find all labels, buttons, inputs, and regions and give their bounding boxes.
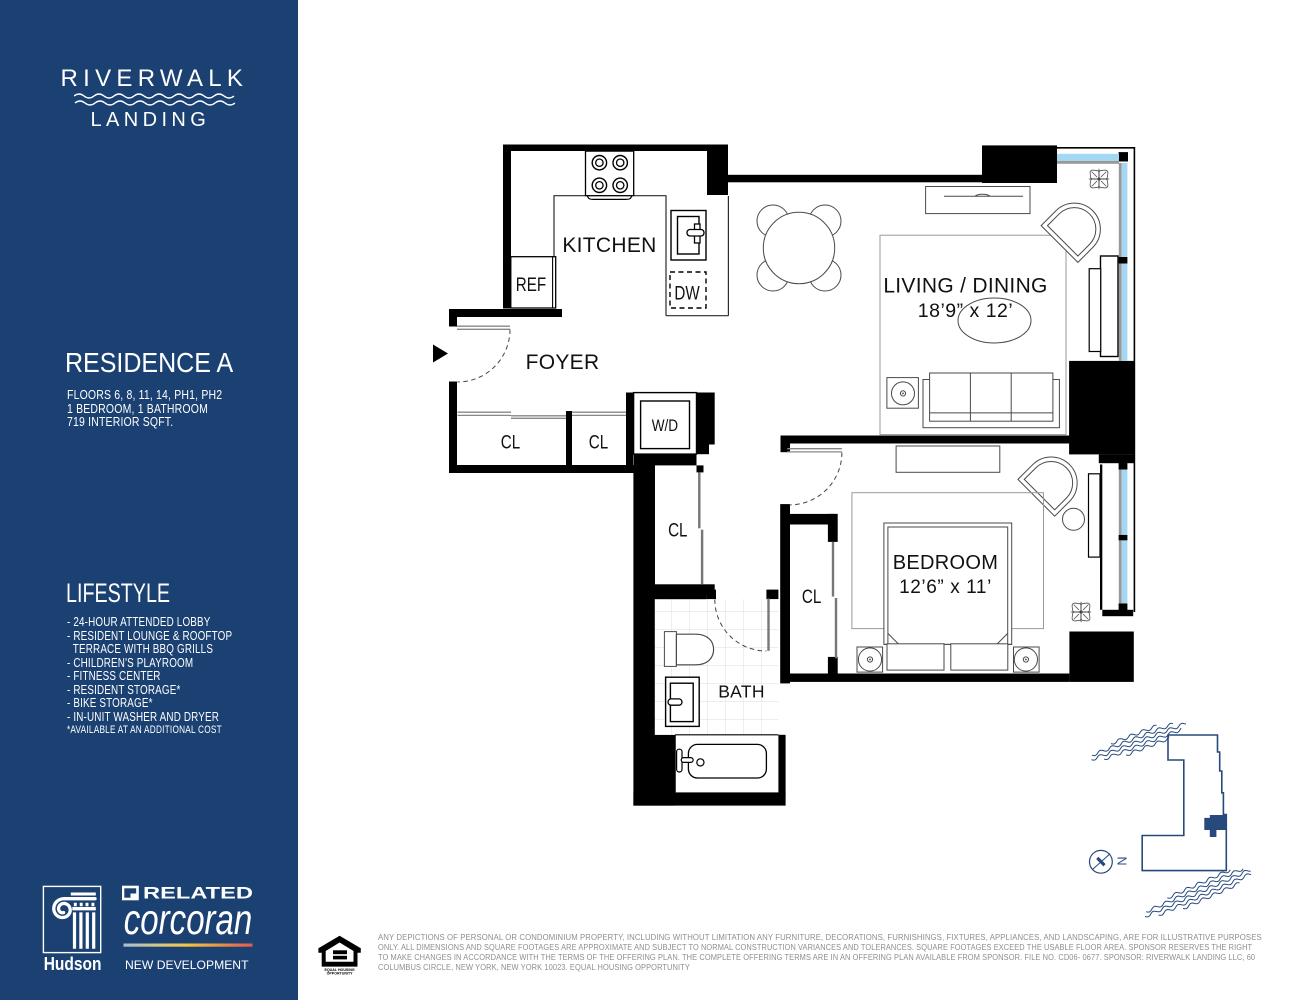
svg-text:CL: CL <box>501 431 521 453</box>
svg-text:BEDROOM: BEDROOM <box>893 552 998 574</box>
svg-text:LIVING / DINING: LIVING / DINING <box>883 275 1047 298</box>
svg-text:CL: CL <box>668 518 688 540</box>
svg-text:N: N <box>1115 857 1129 866</box>
svg-text:CL: CL <box>802 585 822 607</box>
svg-text:CL: CL <box>589 431 609 453</box>
svg-text:REF: REF <box>516 273 546 295</box>
svg-text:W/D: W/D <box>652 416 678 435</box>
svg-text:18’9” x 12’: 18’9” x 12’ <box>918 300 1013 322</box>
svg-text:DW: DW <box>674 282 700 304</box>
svg-text:FOYER: FOYER <box>526 351 600 374</box>
svg-text:BATH: BATH <box>718 682 765 702</box>
svg-text:12’6” x 11’: 12’6” x 11’ <box>899 577 992 598</box>
svg-text:KITCHEN: KITCHEN <box>562 234 656 257</box>
svg-text:OPPORTUNITY: OPPORTUNITY <box>327 972 354 976</box>
